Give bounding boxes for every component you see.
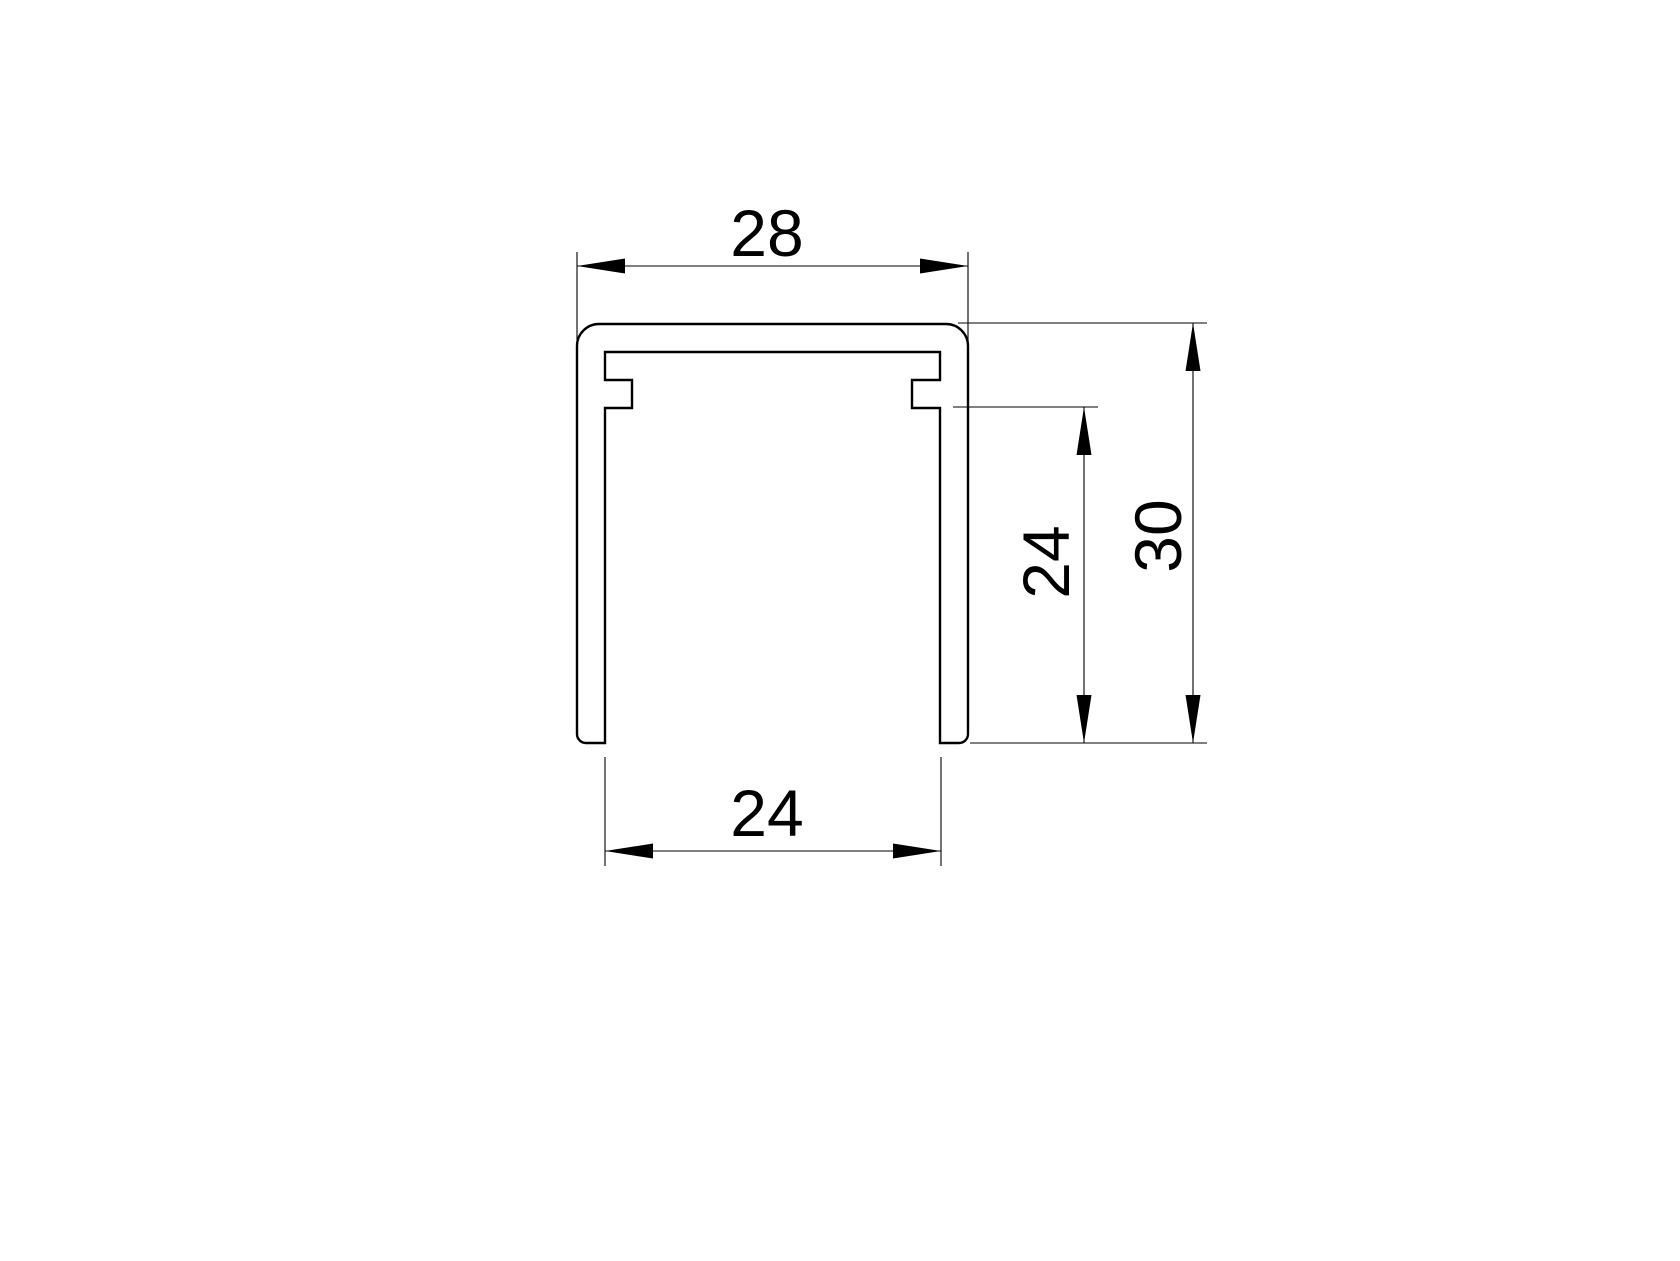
dim-label-outer-width: 28 (730, 196, 803, 270)
arrowhead-up-icon (1077, 407, 1092, 455)
arrowhead-down-icon (1186, 695, 1201, 743)
dim-label-inner-width: 24 (730, 776, 803, 850)
channel-profile-outline (577, 324, 968, 743)
arrowhead-right-icon (920, 259, 968, 274)
dim-inner-height: 24 (953, 407, 1098, 743)
arrowhead-right-icon (893, 844, 941, 859)
dim-label-inner-height: 24 (1009, 525, 1083, 598)
dim-inner-width: 24 (605, 757, 941, 866)
drawing-page: 28 24 24 30 (0, 0, 1680, 1261)
arrowhead-left-icon (577, 259, 625, 274)
dim-outer-width: 28 (577, 196, 968, 343)
technical-drawing-canvas: 28 24 24 30 (0, 0, 1680, 1261)
arrowhead-down-icon (1077, 695, 1092, 743)
dim-label-outer-height: 30 (1121, 499, 1195, 572)
arrowhead-left-icon (605, 844, 653, 859)
arrowhead-up-icon (1186, 323, 1201, 371)
